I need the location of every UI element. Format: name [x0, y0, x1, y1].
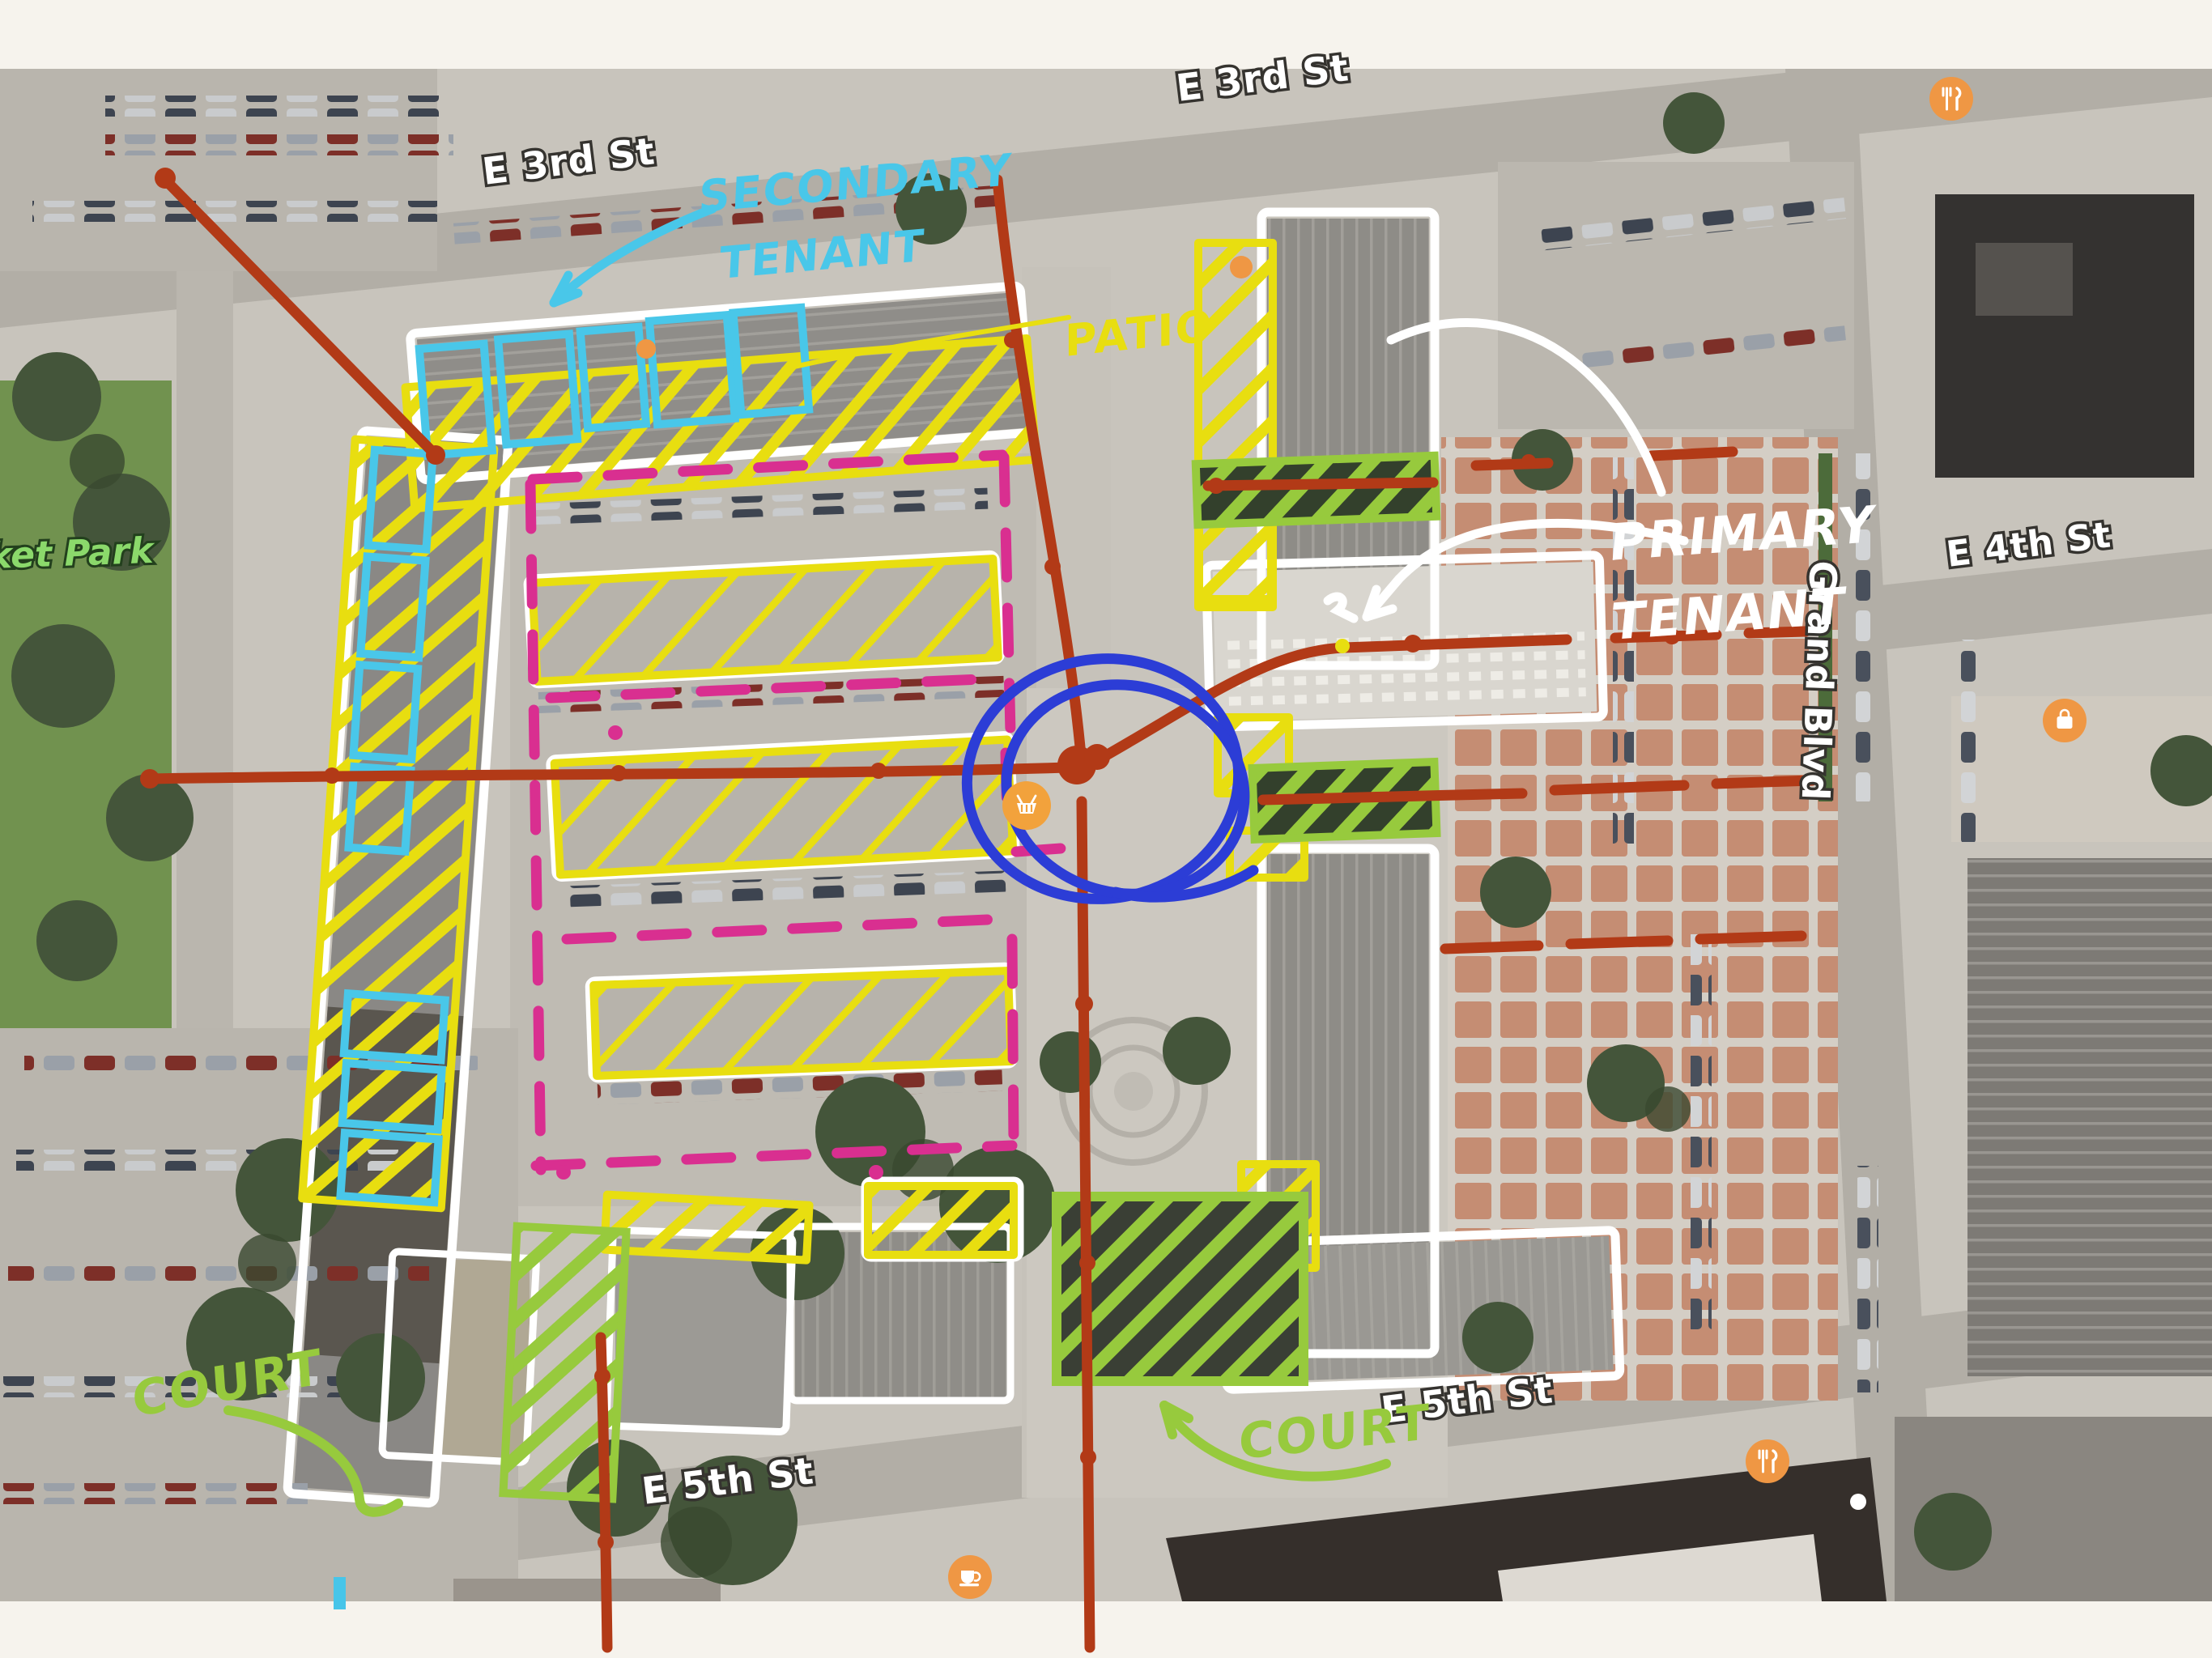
car-column — [1959, 640, 1980, 842]
car-column — [1691, 931, 1712, 1336]
car-row — [32, 201, 437, 222]
roof-ribs — [1967, 858, 2212, 1376]
grocery-basket-icon[interactable] — [1002, 781, 1051, 830]
roof-patch — [1976, 243, 2073, 316]
poi-dot[interactable] — [636, 339, 656, 359]
annotated-map-screenshot: E 3rd St E 3rd St E 4th St Grand Blvd E … — [0, 0, 2212, 1658]
shops-bottom — [453, 1579, 721, 1601]
lot-topright — [1498, 162, 1854, 429]
fountain-center — [1114, 1072, 1153, 1111]
bottom-margin — [0, 1601, 2212, 1658]
label-park: ket Park — [0, 530, 156, 577]
coffee-icon[interactable] — [948, 1555, 992, 1599]
shopping-bag-icon[interactable] — [2043, 699, 2087, 742]
yellow-dot — [1335, 639, 1350, 653]
car-row — [105, 134, 453, 155]
car-row — [105, 96, 445, 117]
poi-dot[interactable] — [1230, 256, 1253, 278]
poi-dot-white — [1850, 1494, 1866, 1510]
restaurant-icon[interactable] — [1929, 77, 1973, 121]
blue-paint-mark — [334, 1577, 346, 1609]
top-margin — [0, 0, 2212, 69]
car-column — [1857, 1166, 1878, 1392]
building-dark-topright — [1935, 194, 2194, 478]
car-row — [0, 1483, 308, 1504]
satellite-map[interactable]: E 3rd St E 3rd St E 4th St Grand Blvd E … — [0, 0, 2212, 1658]
restaurant-icon[interactable] — [1746, 1439, 1789, 1483]
car-row — [8, 1263, 429, 1284]
